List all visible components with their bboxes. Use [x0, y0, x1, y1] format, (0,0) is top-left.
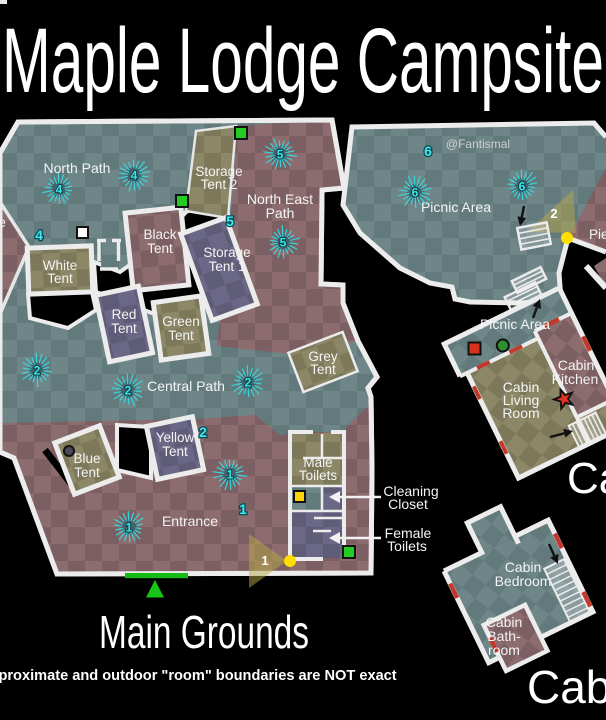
- svg-text:4: 4: [131, 169, 138, 183]
- svg-text:Tent: Tent: [162, 444, 188, 459]
- svg-text:2: 2: [245, 376, 252, 390]
- svg-text:Picnic Area: Picnic Area: [480, 316, 550, 332]
- svg-text:Toilets: Toilets: [387, 538, 427, 554]
- svg-text:Ca: Ca: [567, 454, 606, 503]
- svg-text:2: 2: [550, 206, 557, 221]
- svg-text:Blue: Blue: [73, 451, 100, 466]
- svg-text:Tent: Tent: [310, 362, 336, 377]
- svg-text:Tent: Tent: [74, 465, 100, 480]
- svg-text:Main Grounds: Main Grounds: [99, 606, 309, 658]
- svg-text:5: 5: [280, 236, 287, 250]
- svg-text:5: 5: [277, 148, 284, 162]
- svg-text:Pier: Pier: [589, 227, 606, 242]
- svg-text:Picnic Area: Picnic Area: [421, 199, 491, 215]
- svg-text:Closet: Closet: [388, 496, 428, 512]
- svg-text:Toilets: Toilets: [299, 468, 338, 483]
- svg-text:Maple Lodge Campsite: Maple Lodge Campsite: [2, 10, 604, 112]
- svg-text:1: 1: [261, 553, 268, 568]
- svg-text:Tent: Tent: [168, 328, 194, 343]
- svg-text:Tent: Tent: [47, 271, 73, 286]
- svg-text:Red: Red: [112, 307, 137, 322]
- svg-text:Approximate and outdoor "room": Approximate and outdoor "room" boundarie…: [0, 668, 397, 684]
- svg-text:@Fantismal: @Fantismal: [446, 137, 510, 151]
- svg-text:Kitchen: Kitchen: [552, 371, 599, 387]
- svg-text:2: 2: [34, 364, 41, 378]
- svg-text:Green: Green: [162, 314, 200, 329]
- svg-text:2: 2: [125, 384, 132, 398]
- svg-text:6: 6: [519, 180, 526, 194]
- svg-text:Path: Path: [266, 205, 295, 221]
- svg-text:Tent 1: Tent 1: [209, 259, 246, 274]
- svg-text:room: room: [488, 642, 520, 658]
- svg-text:4: 4: [56, 183, 63, 197]
- svg-text:Tent: Tent: [147, 241, 173, 256]
- svg-text:Entrance: Entrance: [162, 513, 218, 529]
- svg-text:Cabin: Cabin: [527, 661, 606, 713]
- svg-text:e: e: [0, 214, 6, 230]
- svg-text:Tent: Tent: [111, 321, 137, 336]
- svg-text:Tent 2: Tent 2: [201, 177, 238, 192]
- svg-text:5: 5: [226, 213, 234, 229]
- svg-text:North Path: North Path: [44, 160, 111, 176]
- svg-text:Yellow: Yellow: [156, 430, 195, 445]
- svg-text:1: 1: [239, 501, 247, 517]
- svg-text:2: 2: [199, 424, 207, 440]
- svg-text:Bedroom: Bedroom: [495, 573, 552, 589]
- svg-text:1: 1: [227, 468, 234, 482]
- svg-text:Storage: Storage: [203, 245, 250, 260]
- svg-text:6: 6: [412, 186, 419, 200]
- svg-text:Central Path: Central Path: [147, 378, 225, 394]
- svg-text:Black: Black: [143, 227, 176, 242]
- svg-text:4: 4: [35, 227, 43, 243]
- svg-text:Room: Room: [502, 405, 539, 421]
- svg-text:1: 1: [126, 521, 133, 535]
- svg-text:6: 6: [424, 143, 432, 159]
